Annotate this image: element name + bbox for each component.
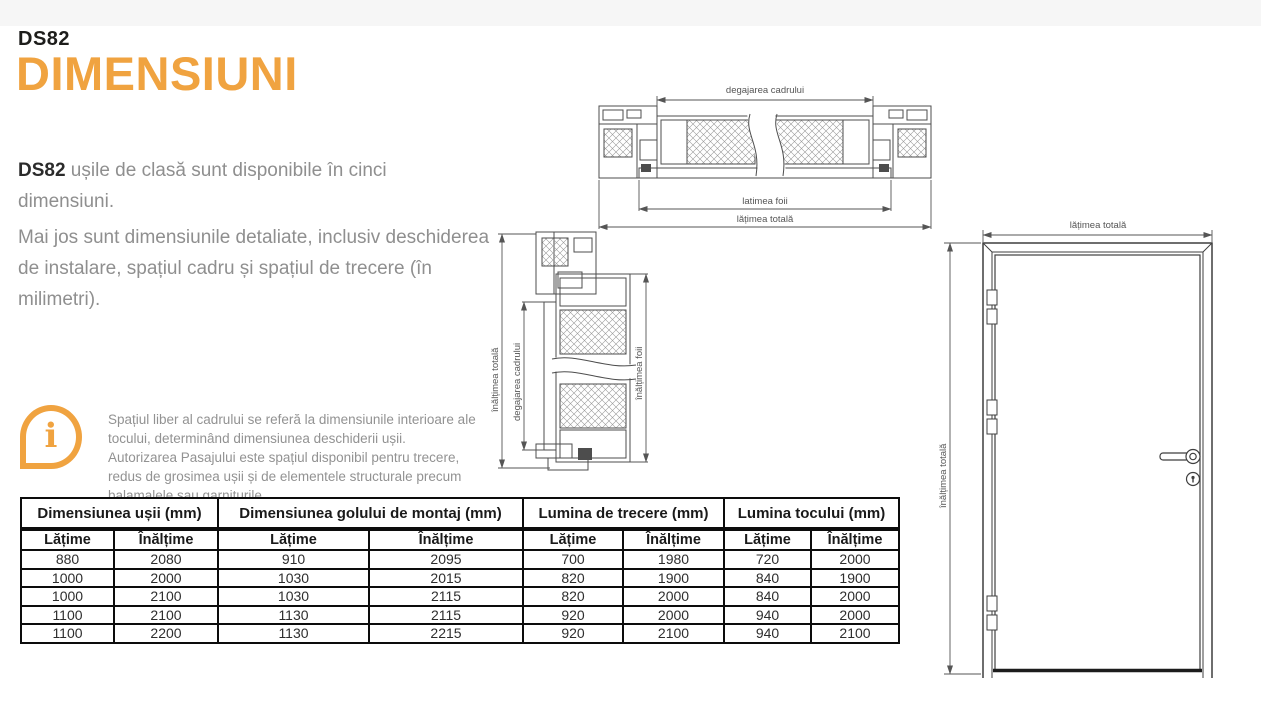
dimension-cell: 910 bbox=[218, 550, 369, 569]
insulation-crosshatch bbox=[560, 384, 626, 428]
info-icon-glyph: i bbox=[45, 419, 58, 453]
subheader-cell: Lățime bbox=[724, 529, 811, 550]
group-header-cell: Dimensiunea golului de montaj (mm) bbox=[218, 498, 523, 529]
dimension-cell: 1000 bbox=[21, 587, 114, 606]
dimension-cell: 920 bbox=[523, 606, 623, 625]
insulation-crosshatch bbox=[560, 310, 626, 354]
dimension-cell: 880 bbox=[21, 550, 114, 569]
dimension-cell: 2100 bbox=[114, 606, 218, 625]
subheader-cell: Lățime bbox=[218, 529, 369, 550]
info-note: i Spațiul liber al cadrului se referă la… bbox=[20, 405, 492, 505]
dimension-cell: 2000 bbox=[623, 606, 724, 625]
dimension-cell: 1100 bbox=[21, 606, 114, 625]
dimension-cell: 1100 bbox=[21, 624, 114, 643]
dim-label-total-width: lățimea totală bbox=[1070, 220, 1127, 231]
dimension-cell: 2100 bbox=[811, 624, 899, 643]
table-subheader-row: Lățime Înălțime Lățime Înălțime Lățime Î… bbox=[21, 529, 899, 550]
intro-paragraph: DS82 ușile de clasă sunt disponibile în … bbox=[18, 155, 476, 217]
table-group-header-row: Dimensiunea ușii (mm) Dimensiunea golulu… bbox=[21, 498, 899, 529]
break-lines bbox=[550, 357, 638, 380]
dimension-cell: 2100 bbox=[623, 624, 724, 643]
note-line-1: Spațiul liber al cadrului se referă la d… bbox=[108, 410, 492, 448]
subheader-cell: Lățime bbox=[21, 529, 114, 550]
dimension-cell: 2000 bbox=[811, 550, 899, 569]
table-row: 1100 2200 1130 2215 920 2100 940 2100 bbox=[21, 624, 899, 643]
hinge-icon bbox=[987, 615, 997, 630]
frame-profile-right bbox=[873, 106, 931, 178]
subheader-cell: Înălțime bbox=[811, 529, 899, 550]
dimension-cell: 2000 bbox=[114, 569, 218, 588]
door-leaf bbox=[993, 255, 1202, 671]
table-row: 1100 2100 1130 2115 920 2000 940 2000 bbox=[21, 606, 899, 625]
dimension-cell: 1980 bbox=[623, 550, 724, 569]
dim-label-leaf-height: înălțimea foii bbox=[634, 347, 645, 401]
dimension-cell: 2080 bbox=[114, 550, 218, 569]
dimension-cell: 840 bbox=[724, 587, 811, 606]
dimension-cell: 1030 bbox=[218, 569, 369, 588]
table-row: 1000 2100 1030 2115 820 2000 840 2000 bbox=[21, 587, 899, 606]
dimension-cell: 940 bbox=[724, 606, 811, 625]
hinge-icon bbox=[987, 400, 997, 415]
dimension-cell: 1900 bbox=[623, 569, 724, 588]
dimension-cell: 720 bbox=[724, 550, 811, 569]
dim-label-frame-clearance: degajarea cadrului bbox=[726, 85, 804, 96]
info-note-text: Spațiul liber al cadrului se referă la d… bbox=[108, 405, 492, 505]
dimension-cell: 2000 bbox=[811, 606, 899, 625]
subheader-cell: Înălțime bbox=[114, 529, 218, 550]
dimension-cell: 920 bbox=[523, 624, 623, 643]
table-row: 1000 2000 1030 2015 820 1900 840 1900 bbox=[21, 569, 899, 588]
group-header-cell: Dimensiunea ușii (mm) bbox=[21, 498, 218, 529]
dim-label-total-width: lățimea totală bbox=[737, 214, 794, 225]
page-title: DIMENSIUNI bbox=[16, 50, 298, 97]
top-strip bbox=[0, 0, 1261, 26]
dim-label-frame-clearance: degajarea cadrului bbox=[512, 343, 523, 421]
group-header-cell: Lumina tocului (mm) bbox=[724, 498, 899, 529]
dimension-cell: 2000 bbox=[811, 587, 899, 606]
subheader-cell: Lățime bbox=[523, 529, 623, 550]
dimension-cell: 700 bbox=[523, 550, 623, 569]
description-paragraph: Mai jos sunt dimensiunile detaliate, inc… bbox=[18, 222, 496, 315]
dimension-cell: 2015 bbox=[369, 569, 523, 588]
dimension-cell: 940 bbox=[724, 624, 811, 643]
hinge-icon bbox=[987, 309, 997, 324]
horizontal-section-drawing: degajarea cadrului latimea foii lățimea … bbox=[595, 82, 935, 234]
hinge-icon bbox=[987, 419, 997, 434]
dim-label-leaf-width: latimea foii bbox=[742, 196, 787, 207]
dimension-cell: 2115 bbox=[369, 606, 523, 625]
dimension-cell: 2095 bbox=[369, 550, 523, 569]
dimension-cell: 2115 bbox=[369, 587, 523, 606]
dimension-cell: 1030 bbox=[218, 587, 369, 606]
dim-label-total-height: înălțimea totală bbox=[490, 347, 501, 413]
dim-label-total-height: înălțimea totală bbox=[938, 443, 949, 509]
intro-text: ușile de clasă sunt disponibile în cinci… bbox=[18, 160, 387, 212]
subheader-cell: Înălțime bbox=[369, 529, 523, 550]
dimension-cell: 2200 bbox=[114, 624, 218, 643]
dimension-cell: 1900 bbox=[811, 569, 899, 588]
dimension-cell: 1130 bbox=[218, 624, 369, 643]
frame-profile-head bbox=[536, 232, 596, 294]
dimension-cell: 1130 bbox=[218, 606, 369, 625]
hinge-icon bbox=[987, 290, 997, 305]
door-front-drawing: lățimea totală înălțimea totală bbox=[935, 218, 1261, 690]
catalog-page: { "colors": { "accent": "#F0A340", "text… bbox=[0, 0, 1261, 717]
dimension-cell: 2000 bbox=[623, 587, 724, 606]
dimension-cell: 820 bbox=[523, 587, 623, 606]
subheader-cell: Înălțime bbox=[623, 529, 724, 550]
vertical-section-drawing: înălțimea totală degajarea cadrului înăl… bbox=[490, 218, 680, 476]
dimension-cell: 2100 bbox=[114, 587, 218, 606]
dimension-cell: 820 bbox=[523, 569, 623, 588]
dimension-cell: 2215 bbox=[369, 624, 523, 643]
hinge-icon bbox=[987, 596, 997, 611]
group-header-cell: Lumina de trecere (mm) bbox=[523, 498, 724, 529]
frame-profile-left bbox=[599, 106, 657, 178]
insulation-crosshatch bbox=[775, 120, 843, 164]
dimensions-table: Dimensiunea ușii (mm) Dimensiunea golulu… bbox=[20, 497, 900, 644]
dimension-cell: 840 bbox=[724, 569, 811, 588]
intro-product-code: DS82 bbox=[18, 160, 66, 181]
insulation-crosshatch bbox=[687, 120, 755, 164]
lock-cylinder-icon bbox=[1187, 473, 1200, 486]
info-icon: i bbox=[20, 405, 82, 469]
table-row: 880 2080 910 2095 700 1980 720 2000 bbox=[21, 550, 899, 569]
dimension-cell: 1000 bbox=[21, 569, 114, 588]
